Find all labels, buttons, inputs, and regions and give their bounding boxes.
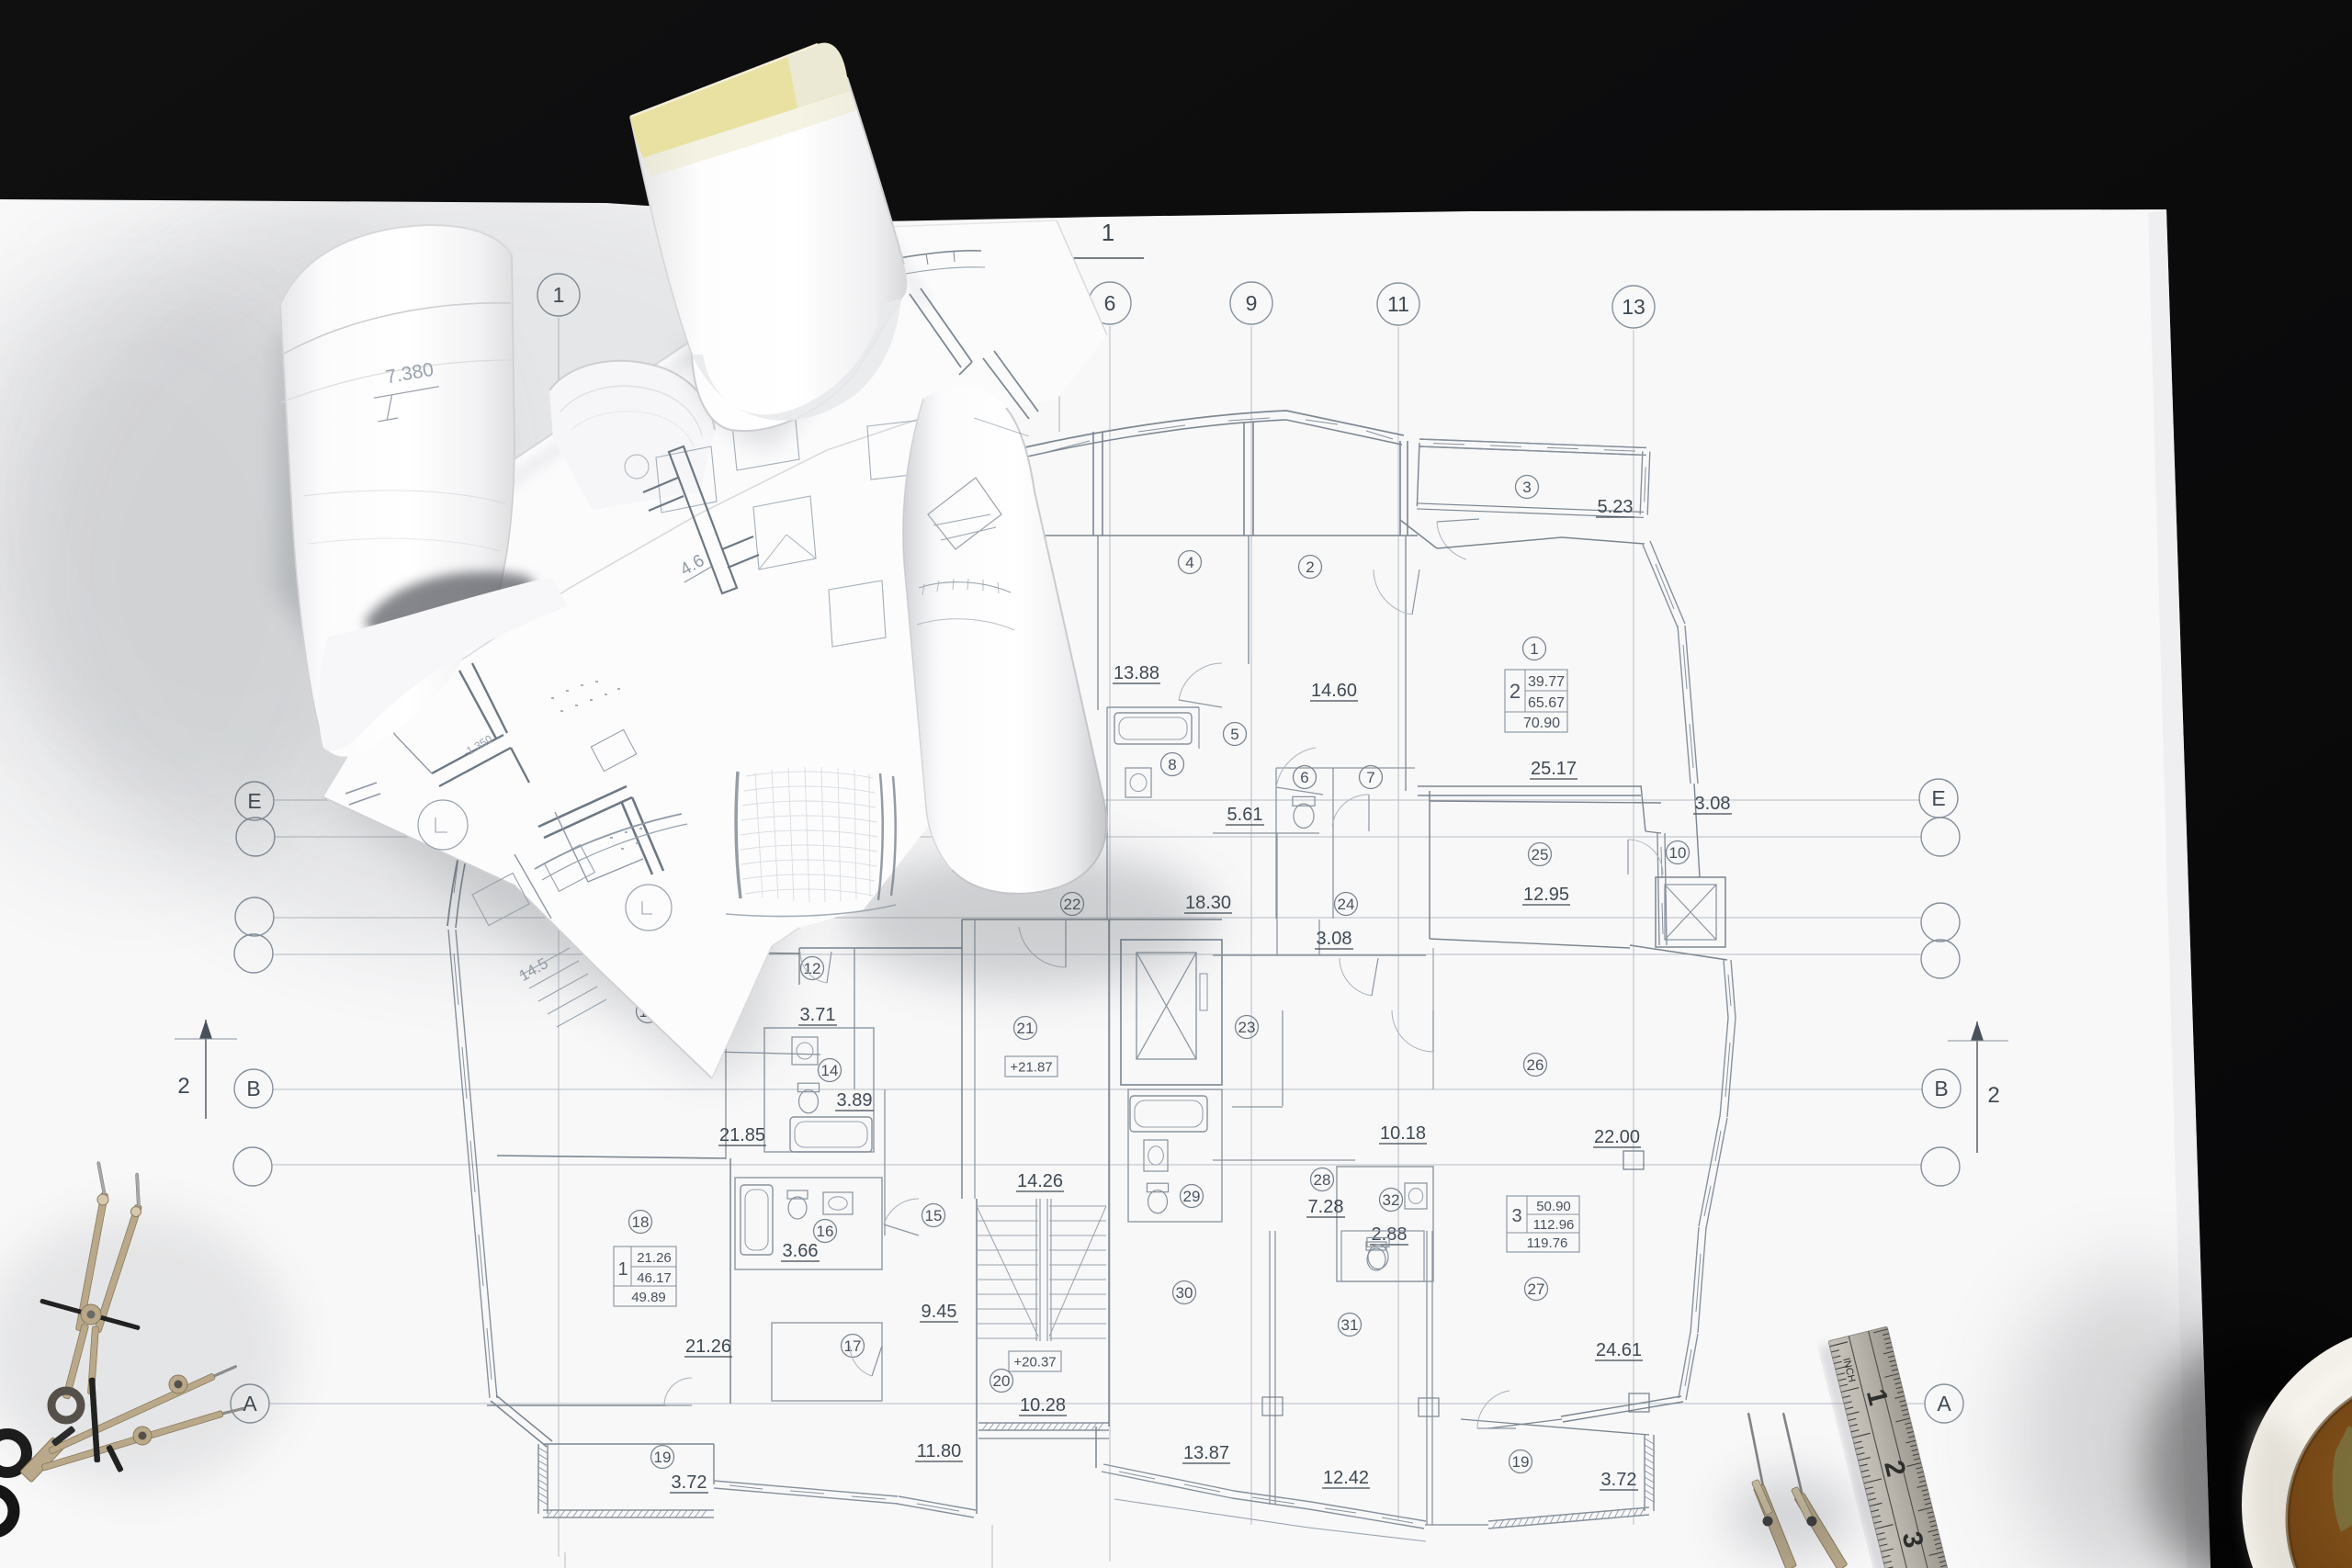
svg-text:1: 1 <box>617 1259 628 1280</box>
svg-text:11: 11 <box>1387 292 1409 316</box>
svg-text:3.08: 3.08 <box>1317 929 1352 949</box>
svg-text:112.96: 112.96 <box>1533 1217 1575 1233</box>
svg-text:15: 15 <box>925 1207 943 1224</box>
svg-text:28: 28 <box>1314 1171 1331 1189</box>
svg-text:50.90: 50.90 <box>1536 1199 1571 1214</box>
svg-text:20: 20 <box>993 1372 1011 1390</box>
svg-text:4: 4 <box>1185 554 1193 571</box>
svg-text:12.42: 12.42 <box>1323 1468 1369 1488</box>
svg-text:3.89: 3.89 <box>837 1090 873 1111</box>
svg-text:13.87: 13.87 <box>1183 1443 1229 1463</box>
svg-text:6: 6 <box>1104 291 1116 315</box>
svg-text:E: E <box>1931 786 1945 810</box>
svg-text:3: 3 <box>1511 1206 1521 1226</box>
svg-text:2: 2 <box>177 1074 189 1099</box>
svg-text:1: 1 <box>1102 219 1114 246</box>
svg-text:70.90: 70.90 <box>1523 716 1560 731</box>
svg-text:46.17: 46.17 <box>637 1270 672 1286</box>
svg-text:3.72: 3.72 <box>1601 1470 1637 1490</box>
svg-text:1: 1 <box>1530 640 1538 658</box>
svg-text:7: 7 <box>1366 769 1374 786</box>
svg-text:19: 19 <box>654 1449 672 1466</box>
svg-text:9.45: 9.45 <box>922 1302 957 1322</box>
svg-text:21.26: 21.26 <box>637 1250 672 1266</box>
svg-text:5.23: 5.23 <box>1598 497 1634 517</box>
svg-text:18: 18 <box>632 1213 650 1231</box>
svg-text:14.60: 14.60 <box>1311 681 1357 701</box>
svg-text:6: 6 <box>1300 769 1308 786</box>
svg-text:13: 13 <box>1622 295 1645 319</box>
svg-text:5: 5 <box>1230 726 1238 743</box>
svg-text:30: 30 <box>1176 1284 1193 1302</box>
svg-text:14.26: 14.26 <box>1017 1171 1063 1191</box>
svg-text:5.61: 5.61 <box>1227 805 1263 825</box>
svg-text:2: 2 <box>1306 558 1314 576</box>
svg-text:3.72: 3.72 <box>672 1472 707 1493</box>
svg-text:9: 9 <box>1246 291 1258 315</box>
svg-text:19: 19 <box>1512 1453 1530 1471</box>
svg-text:49.89: 49.89 <box>631 1290 666 1305</box>
svg-text:29: 29 <box>1183 1188 1201 1205</box>
svg-text:14: 14 <box>821 1062 839 1079</box>
svg-text:39.77: 39.77 <box>1528 674 1565 690</box>
svg-text:3: 3 <box>1522 479 1531 496</box>
svg-text:10.18: 10.18 <box>1380 1123 1426 1144</box>
svg-text:21.26: 21.26 <box>685 1337 731 1357</box>
svg-text:10.28: 10.28 <box>1020 1395 1066 1416</box>
svg-text:27: 27 <box>1528 1280 1545 1298</box>
svg-text:21.85: 21.85 <box>719 1125 765 1145</box>
svg-text:24.61: 24.61 <box>1596 1340 1642 1360</box>
svg-text:25.17: 25.17 <box>1531 759 1577 779</box>
svg-text:8: 8 <box>1168 756 1176 773</box>
svg-text:7.28: 7.28 <box>1308 1197 1344 1217</box>
svg-text:11.80: 11.80 <box>917 1441 962 1461</box>
svg-text:12: 12 <box>804 960 821 977</box>
svg-text:13.88: 13.88 <box>1114 663 1159 683</box>
svg-text:+20.37: +20.37 <box>1013 1354 1056 1370</box>
svg-text:A: A <box>1937 1392 1951 1416</box>
svg-text:16: 16 <box>817 1223 834 1240</box>
svg-text:25: 25 <box>1532 846 1549 863</box>
svg-text:+21.87: +21.87 <box>1010 1059 1052 1075</box>
svg-text:26: 26 <box>1527 1056 1544 1074</box>
svg-text:B: B <box>246 1077 260 1100</box>
svg-text:32: 32 <box>1383 1191 1400 1209</box>
svg-text:2: 2 <box>1510 680 1521 703</box>
svg-text:12.95: 12.95 <box>1523 885 1569 905</box>
svg-text:24: 24 <box>1338 896 1355 913</box>
svg-text:3.66: 3.66 <box>783 1241 819 1261</box>
svg-text:B: B <box>1934 1077 1948 1100</box>
svg-text:10: 10 <box>1669 844 1687 862</box>
svg-text:23: 23 <box>1238 1019 1256 1036</box>
svg-text:21: 21 <box>1017 1020 1035 1037</box>
svg-text:3.71: 3.71 <box>800 1005 836 1025</box>
svg-text:17: 17 <box>844 1337 862 1355</box>
svg-text:65.67: 65.67 <box>1528 695 1565 711</box>
svg-text:3.08: 3.08 <box>1695 794 1731 814</box>
svg-text:31: 31 <box>1341 1316 1359 1334</box>
svg-text:119.76: 119.76 <box>1527 1235 1568 1251</box>
svg-text:22.00: 22.00 <box>1594 1127 1640 1147</box>
svg-text:2: 2 <box>1987 1083 1999 1108</box>
